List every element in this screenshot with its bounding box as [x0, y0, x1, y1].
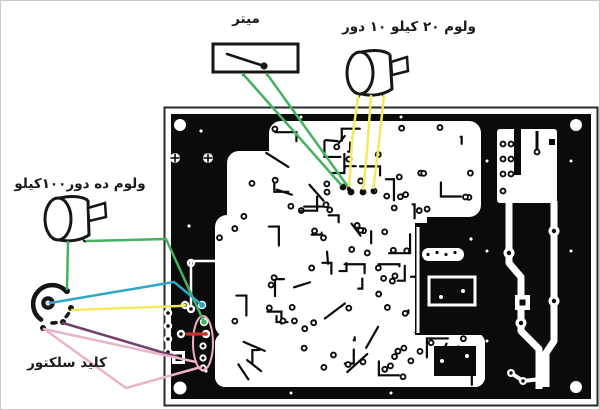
- label-pot-100k: ولوم ده دور۱۰۰کیلو: [13, 176, 145, 192]
- pcb-board: [164, 108, 598, 406]
- potentiometer-100k-symbol: [45, 197, 106, 243]
- wire-pot100k-green-1: [67, 242, 68, 289]
- pot-100k-shaft: [88, 203, 106, 221]
- meter-symbol: [213, 44, 298, 76]
- pcb-relay-pocket: [415, 223, 485, 335]
- label-selector: کلید سلکتور: [26, 355, 107, 371]
- pcb-wiring-diagram: میتر ولوم ۲۰ کیلو ۱۰ دور ولوم ده دور۱۰۰ک…: [0, 0, 600, 410]
- pcb-component-box: [434, 346, 476, 376]
- label-pot-20k: ولوم ۲۰ کیلو ۱۰ دور: [341, 19, 476, 35]
- meter-body: [213, 44, 298, 72]
- label-meter: میتر: [231, 11, 260, 27]
- potentiometer-20k-symbol: [347, 51, 408, 99]
- diagram-canvas: میتر ولوم ۲۰ کیلو ۱۰ دور ولوم ده دور۱۰۰ک…: [1, 1, 600, 410]
- pot-20k-shaft: [391, 57, 408, 75]
- meter-pivot: [260, 62, 267, 69]
- wire-selector-purple: [63, 323, 178, 357]
